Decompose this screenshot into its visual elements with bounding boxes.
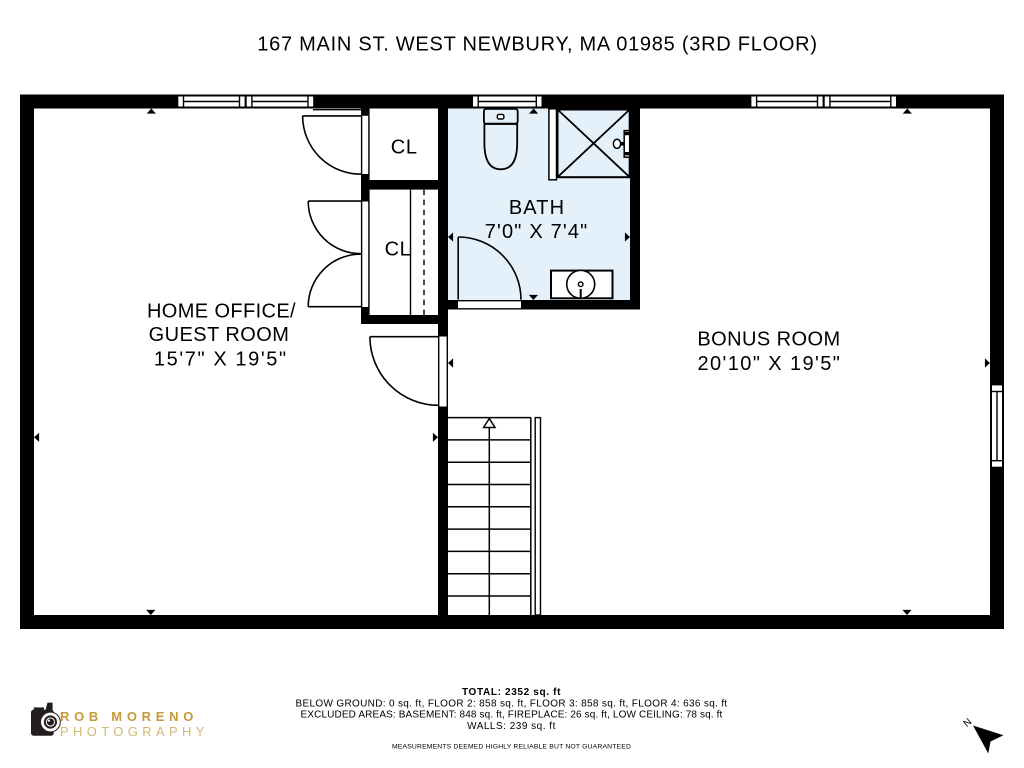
svg-text:BELOW GROUND: 0 sq. ft, FLOOR: BELOW GROUND: 0 sq. ft, FLOOR 2: 858 sq.… (295, 698, 727, 709)
svg-text:GUEST ROOM: GUEST ROOM (149, 324, 290, 346)
svg-text:167 MAIN ST. WEST NEWBURY, MA: 167 MAIN ST. WEST NEWBURY, MA 01985 (3RD… (257, 34, 818, 56)
svg-text:20'10" X 19'5": 20'10" X 19'5" (698, 353, 842, 375)
svg-text:CL: CL (391, 137, 418, 159)
svg-text:N: N (962, 717, 975, 730)
svg-text:15'7" X 19'5": 15'7" X 19'5" (154, 348, 288, 370)
svg-text:BONUS ROOM: BONUS ROOM (697, 328, 840, 350)
svg-text:WALLS: 239 sq. ft: WALLS: 239 sq. ft (467, 721, 556, 732)
svg-text:MEASUREMENTS DEEMED HIGHLY REL: MEASUREMENTS DEEMED HIGHLY RELIABLE BUT … (392, 743, 631, 750)
svg-text:HOME OFFICE/: HOME OFFICE/ (147, 301, 296, 323)
svg-text:ROB MORENO: ROB MORENO (60, 709, 198, 724)
svg-text:PHOTOGRAPHY: PHOTOGRAPHY (60, 724, 209, 739)
svg-text:EXCLUDED AREAS: BASEMENT: 848: EXCLUDED AREAS: BASEMENT: 848 sq. ft, FI… (301, 710, 723, 721)
svg-text:7'0" X 7'4": 7'0" X 7'4" (485, 221, 589, 243)
svg-text:BATH: BATH (509, 197, 565, 219)
svg-text:CL: CL (385, 238, 412, 260)
svg-text:TOTAL: 2352 sq. ft: TOTAL: 2352 sq. ft (462, 687, 561, 698)
